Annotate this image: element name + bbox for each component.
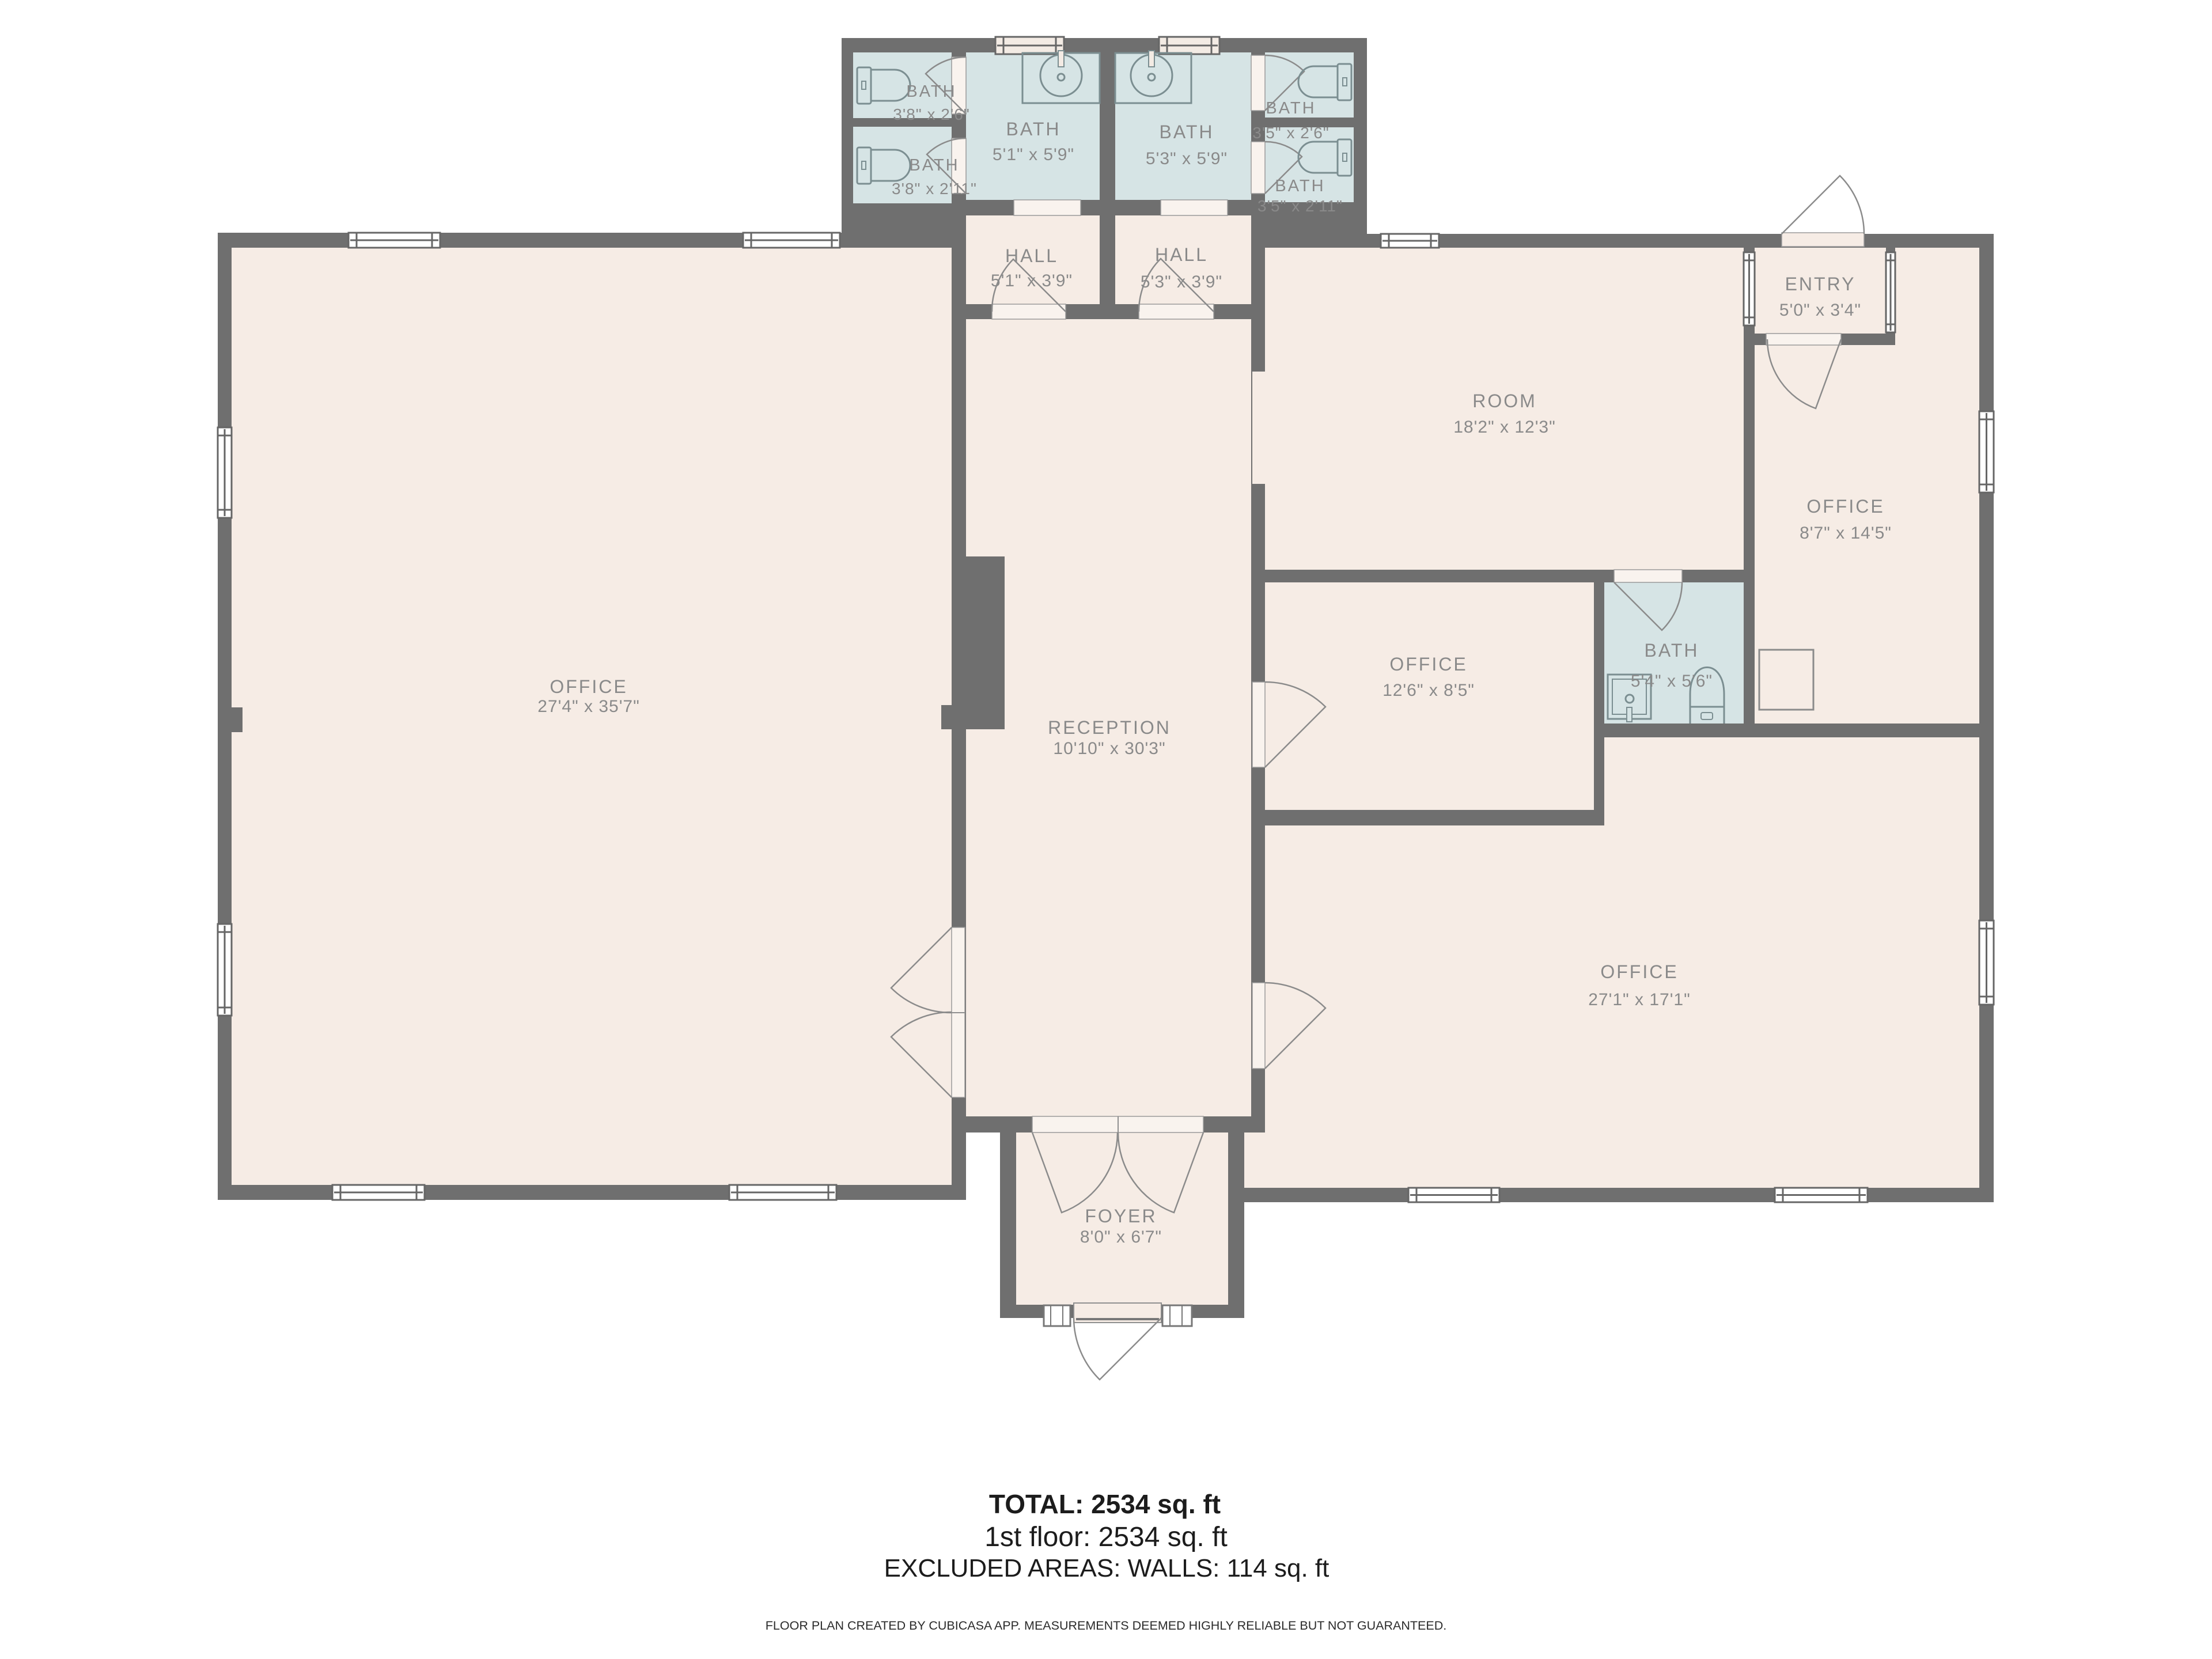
svg-text:FOYER: FOYER	[1085, 1206, 1157, 1226]
svg-text:BATH: BATH	[1266, 99, 1316, 118]
svg-text:BATH: BATH	[906, 82, 956, 101]
svg-text:OFFICE: OFFICE	[550, 676, 627, 697]
svg-text:12'6" x 8'5": 12'6" x 8'5"	[1382, 681, 1475, 700]
svg-text:OFFICE: OFFICE	[1806, 496, 1884, 517]
svg-text:ENTRY: ENTRY	[1785, 274, 1856, 294]
svg-text:5'1" x 5'9": 5'1" x 5'9"	[993, 145, 1074, 164]
svg-text:27'1" x 17'1": 27'1" x 17'1"	[1588, 990, 1691, 1009]
svg-text:8'7" x 14'5": 8'7" x 14'5"	[1800, 524, 1892, 543]
svg-text:27'4" x 35'7": 27'4" x 35'7"	[537, 697, 640, 716]
svg-text:1st floor: 2534 sq. ft: 1st floor: 2534 sq. ft	[984, 1522, 1228, 1552]
svg-text:BATH: BATH	[909, 156, 959, 175]
svg-text:BATH: BATH	[1645, 640, 1699, 661]
svg-text:BATH: BATH	[1160, 122, 1214, 142]
svg-text:5'4" x 5'6": 5'4" x 5'6"	[1631, 672, 1713, 691]
svg-text:5'3" x 3'9": 5'3" x 3'9"	[1141, 272, 1222, 291]
svg-text:3'8" x 2'11": 3'8" x 2'11"	[892, 180, 977, 198]
svg-text:5'1" x 3'9": 5'1" x 3'9"	[991, 271, 1073, 290]
svg-text:3'5" x 2'11": 3'5" x 2'11"	[1257, 197, 1343, 215]
svg-text:RECEPTION: RECEPTION	[1048, 717, 1171, 738]
svg-text:5'0" x 3'4": 5'0" x 3'4"	[1779, 301, 1861, 320]
svg-text:ROOM: ROOM	[1472, 391, 1537, 411]
svg-text:OFFICE: OFFICE	[1600, 961, 1678, 982]
svg-text:OFFICE: OFFICE	[1389, 654, 1467, 675]
svg-text:3'8" x 2'6": 3'8" x 2'6"	[893, 105, 969, 123]
svg-text:BATH: BATH	[1275, 177, 1325, 195]
svg-text:5'3" x 5'9": 5'3" x 5'9"	[1146, 149, 1228, 168]
svg-text:10'10" x 30'3": 10'10" x 30'3"	[1053, 739, 1165, 758]
svg-text:BATH: BATH	[1006, 119, 1061, 139]
svg-text:EXCLUDED AREAS: WALLS: 114 sq.: EXCLUDED AREAS: WALLS: 114 sq. ft	[884, 1554, 1330, 1582]
svg-text:HALL: HALL	[1005, 245, 1058, 266]
svg-text:HALL: HALL	[1155, 244, 1208, 265]
svg-text:8'0" x 6'7": 8'0" x 6'7"	[1080, 1228, 1162, 1247]
svg-text:18'2" x 12'3": 18'2" x 12'3"	[1453, 418, 1556, 437]
svg-text:3'5" x 2'6": 3'5" x 2'6"	[1252, 124, 1329, 142]
svg-text:TOTAL: 2534 sq. ft: TOTAL: 2534 sq. ft	[989, 1489, 1221, 1519]
svg-text:FLOOR PLAN CREATED BY CUBICASA: FLOOR PLAN CREATED BY CUBICASA APP. MEAS…	[766, 1619, 1446, 1633]
